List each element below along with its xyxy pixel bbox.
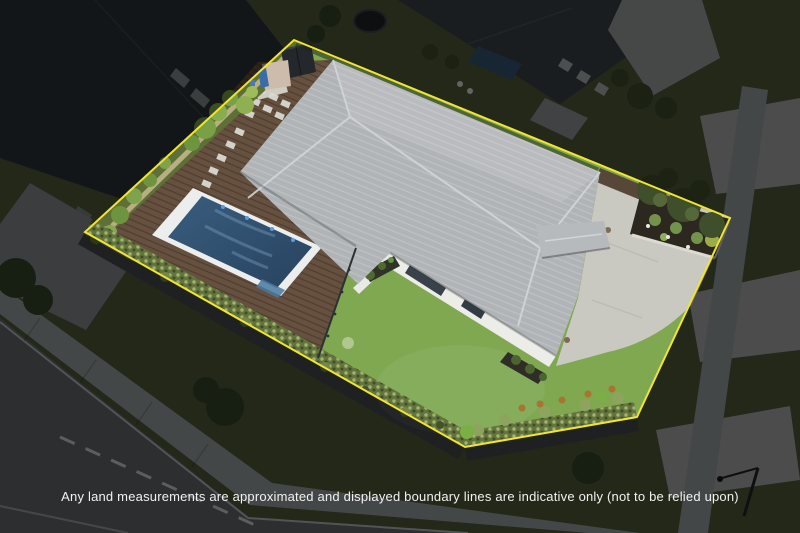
shrub-ball xyxy=(525,364,535,374)
shrub-ball xyxy=(388,257,394,263)
aerial-scene xyxy=(0,0,800,533)
shrub-ball xyxy=(539,373,547,381)
drain-cover xyxy=(564,337,570,343)
shrub-ball xyxy=(511,355,521,365)
disclaimer-text: Any land measurements are approximated a… xyxy=(0,489,800,504)
lawn-patch xyxy=(342,337,354,349)
aerial-property-photo: Any land measurements are approximated a… xyxy=(0,0,800,533)
